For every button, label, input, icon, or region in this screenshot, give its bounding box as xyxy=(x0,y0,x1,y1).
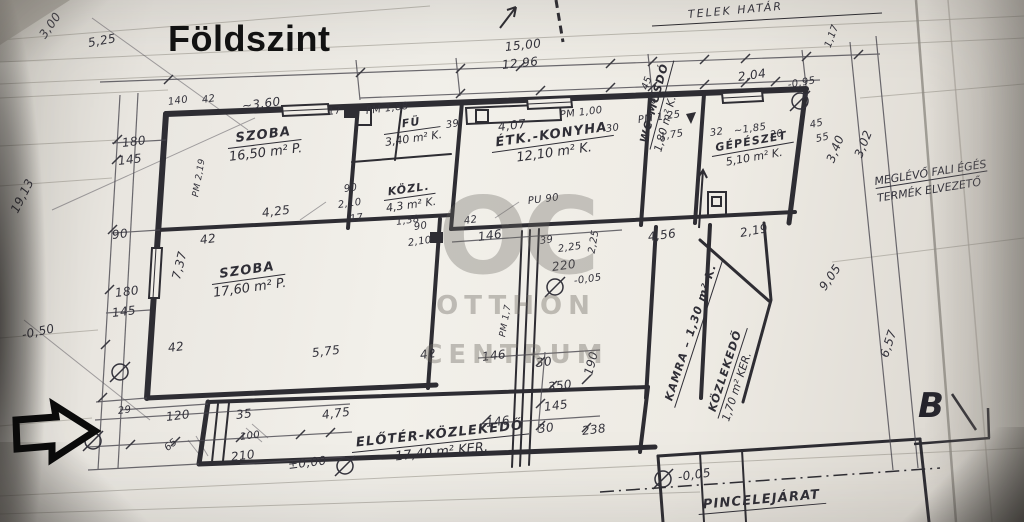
pointer-arrow-icon xyxy=(16,405,95,459)
annotation-layer xyxy=(0,0,1024,522)
floor-plan-photo: SZOBA 16,50 m² P. SZOBA 17,60 m² P. ÉTK.… xyxy=(0,0,1024,522)
